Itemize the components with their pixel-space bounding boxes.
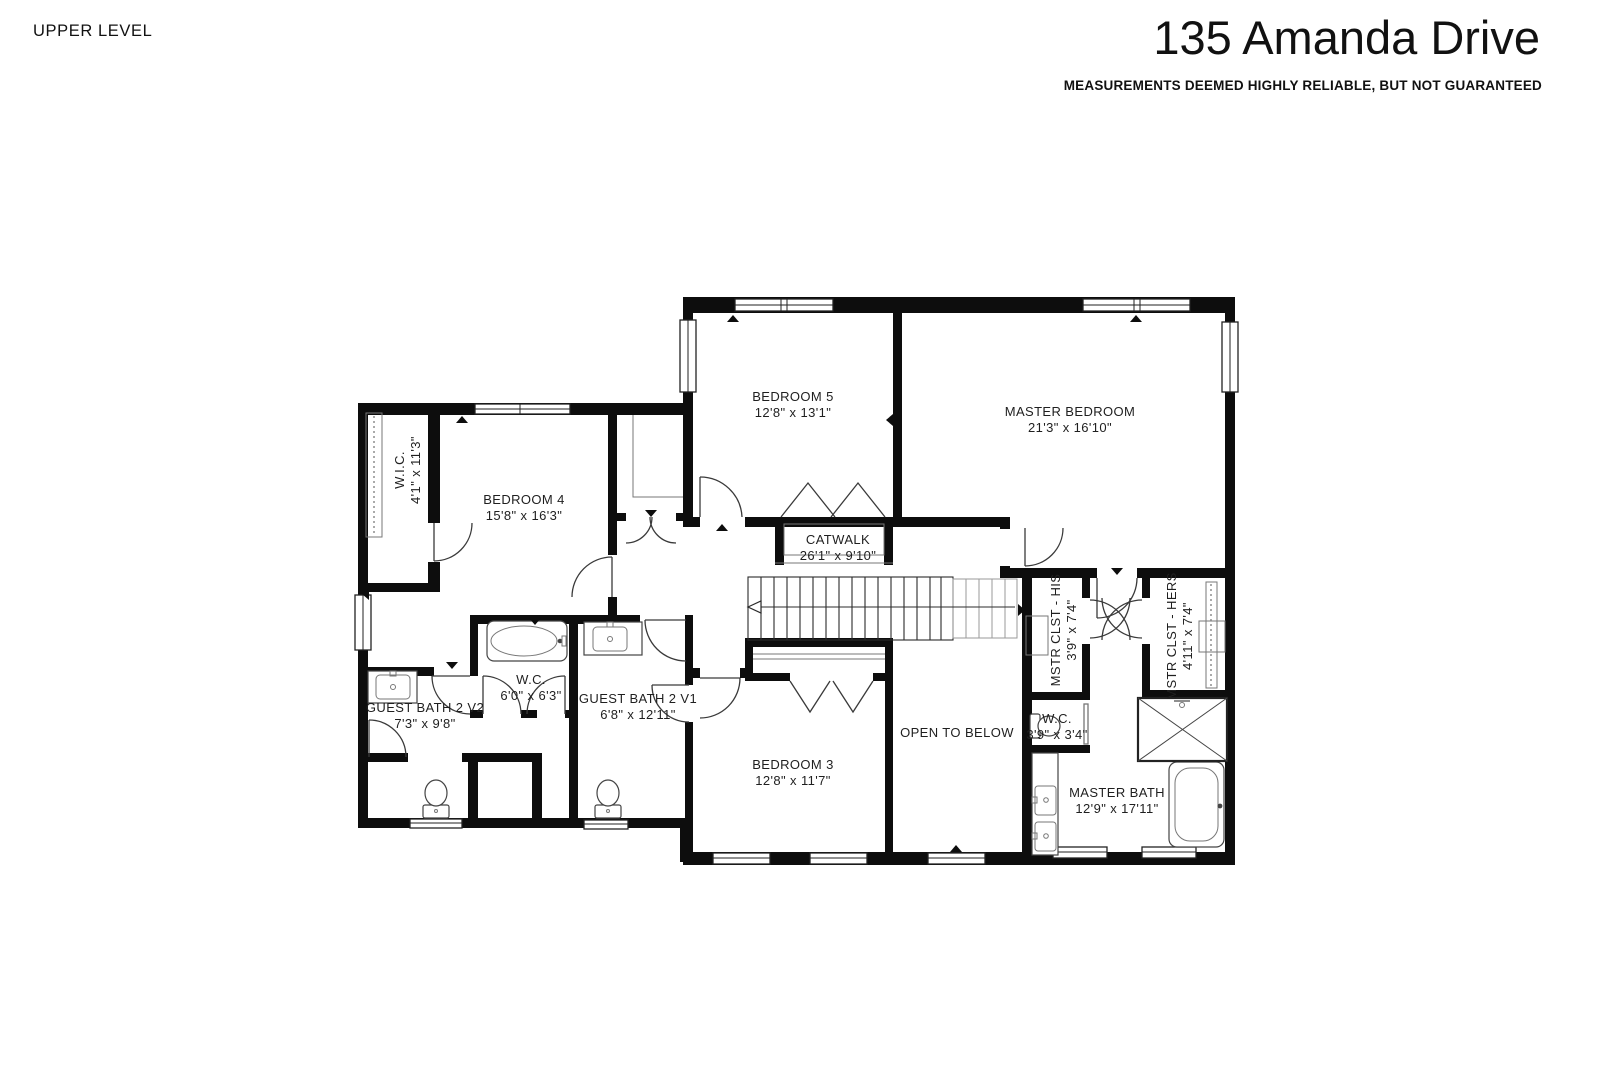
window-icon — [475, 404, 570, 414]
room-label-guest-bath-2-v1: GUEST BATH 2 V16'8" x 12'11" — [579, 691, 697, 722]
closet-door-icon — [1090, 598, 1142, 640]
door-swing-icon — [700, 477, 742, 517]
bathtub-icon — [1169, 762, 1224, 847]
sink-vanity-icon — [1032, 753, 1058, 855]
closet-rod-icon — [366, 413, 382, 537]
room-label-open-to-below: OPEN TO BELOW — [900, 725, 1014, 740]
room-label-bedroom-4: BEDROOM 415'8" x 16'3" — [483, 492, 565, 523]
bathtub-icon — [487, 621, 567, 661]
window-icon — [1142, 847, 1196, 858]
room-label-master-bath: MASTER BATH12'9" x 17'11" — [1069, 785, 1165, 816]
room-label-catwalk: CATWALK26'1" x 9'10" — [800, 532, 877, 563]
window-icon — [1222, 322, 1238, 392]
closet-bifold-icon — [781, 483, 885, 517]
room-label-mstr-clst-his: MSTR CLST - HIS3'9" x 7'4" — [1048, 574, 1079, 687]
shower-icon — [1138, 698, 1227, 761]
window-icon — [810, 853, 867, 864]
sink-vanity-icon — [584, 622, 642, 655]
staircase — [748, 577, 1017, 640]
room-label-bedroom-5: BEDROOM 512'8" x 13'1" — [752, 389, 834, 420]
closet-rod-icon — [1199, 582, 1225, 688]
window-icon — [680, 320, 696, 392]
stair-direction-arrow-icon — [748, 601, 761, 613]
door-swing-icon — [572, 557, 612, 597]
floorplan-drawing: BEDROOM 512'8" x 13'1"MASTER BEDROOM21'3… — [0, 0, 1620, 1080]
room-label-master-bedroom: MASTER BEDROOM21'3" x 16'10" — [1005, 404, 1136, 435]
window-icon — [410, 819, 462, 828]
window-icon — [1053, 847, 1107, 858]
closet-door-icon — [626, 517, 676, 543]
window-icon — [928, 853, 985, 864]
sink-vanity-icon — [368, 671, 417, 703]
room-label-guest-bath-2-v2: GUEST BATH 2 V27'3" x 9'8" — [366, 700, 484, 731]
closet-bifold-icon — [790, 681, 873, 712]
closet-shelf-icon — [633, 415, 683, 497]
toilet-icon — [423, 780, 449, 818]
room-label-wic: W.I.C.4'1" x 11'3" — [392, 436, 423, 504]
door-swing-icon — [434, 523, 472, 561]
closet-shelf-icon — [753, 654, 885, 659]
window-icon — [713, 853, 770, 864]
room-label-wc-guest: W.C.6'0" x 6'3" — [500, 672, 561, 703]
door-swing-icon — [1097, 578, 1137, 618]
door-swing-icon — [700, 678, 740, 718]
toilet-icon — [595, 780, 621, 818]
room-label-bedroom-3: BEDROOM 312'8" x 11'7" — [752, 757, 834, 788]
window-icon — [735, 299, 833, 311]
door-swing-icon — [645, 620, 686, 661]
window-icon — [1083, 299, 1190, 311]
window-icon — [355, 595, 371, 650]
room-label-mstr-clst-hers: MSTR CLST - HERS4'11" x 7'4" — [1164, 572, 1195, 700]
window-icon — [584, 820, 628, 829]
door-swing-icon — [1025, 528, 1063, 566]
